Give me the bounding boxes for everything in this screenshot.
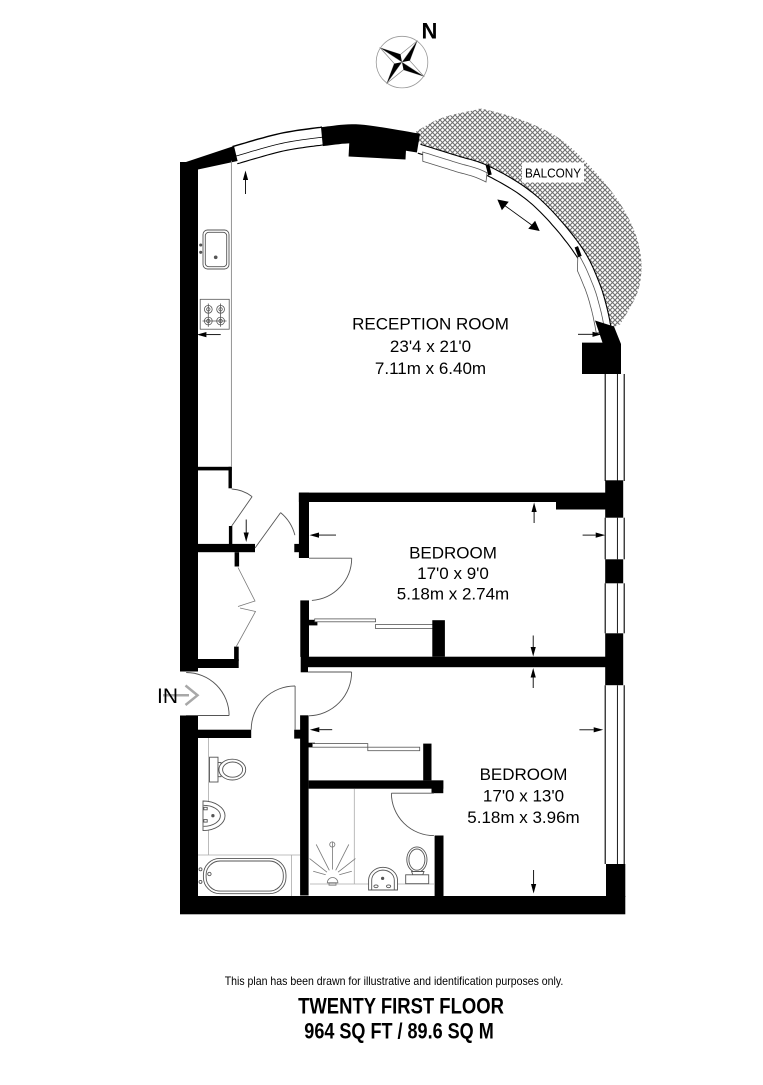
- svg-text:23'4 x 21'0: 23'4 x 21'0: [390, 337, 471, 356]
- svg-text:5.18m x 3.96m: 5.18m x 3.96m: [467, 808, 579, 827]
- svg-text:BEDROOM: BEDROOM: [480, 765, 568, 784]
- svg-text:IN: IN: [157, 685, 178, 708]
- svg-text:This plan has been drawn for i: This plan has been drawn for illustrativ…: [225, 975, 564, 988]
- svg-text:BEDROOM: BEDROOM: [409, 544, 497, 563]
- svg-text:RECEPTION ROOM: RECEPTION ROOM: [352, 315, 509, 334]
- svg-text:964 SQ FT / 89.6 SQ M: 964 SQ FT / 89.6 SQ M: [304, 1020, 493, 1044]
- svg-text:17'0 x 9'0: 17'0 x 9'0: [417, 564, 489, 583]
- svg-text:5.18m x 2.74m: 5.18m x 2.74m: [397, 585, 509, 604]
- svg-text:TWENTY FIRST FLOOR: TWENTY FIRST FLOOR: [298, 995, 504, 1019]
- svg-text:N: N: [422, 19, 438, 44]
- svg-text:17'0 x 13'0: 17'0 x 13'0: [483, 787, 564, 806]
- svg-text:7.11m x 6.40m: 7.11m x 6.40m: [375, 359, 486, 378]
- svg-text:BALCONY: BALCONY: [525, 166, 582, 181]
